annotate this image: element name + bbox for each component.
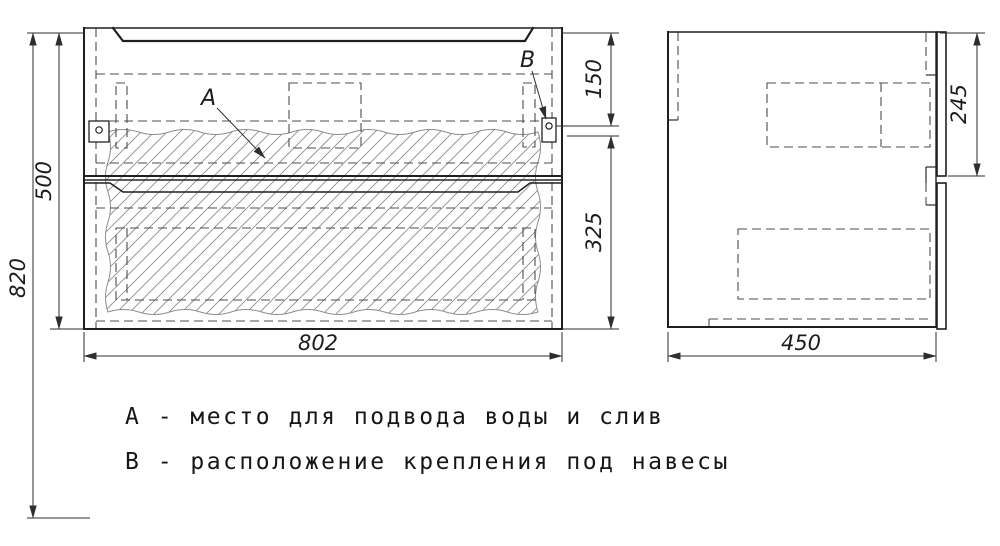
mounting-hole-left [96, 127, 102, 133]
hatch-section [106, 130, 541, 315]
side-view [668, 32, 946, 329]
dim-carcass-depth-value: 450 [781, 331, 821, 355]
technical-drawing: А В [0, 0, 1000, 546]
dim-carcass-width: 802 [84, 331, 562, 356]
dim-carcass-width-value: 802 [298, 331, 338, 355]
mounting-plate-right [542, 118, 556, 142]
legend-line-a: А - место для подвода воды и слив [125, 404, 664, 430]
side-body-outline [668, 32, 936, 327]
legend: А - место для подвода воды и слив В - ра… [125, 404, 730, 475]
dim-overall-height-value: 820 [6, 258, 30, 298]
mounting-hole-right [546, 123, 552, 129]
callout-b-leader [532, 71, 546, 119]
dim-carcass-height: 500 [32, 33, 59, 329]
dim-hanger-offset-top: 150 [582, 33, 611, 126]
dim-hanger-offset-top-value: 150 [582, 59, 606, 99]
callout-b-label: В [520, 48, 535, 73]
legend-line-b: В - расположение крепления под навесы [125, 449, 730, 475]
side-drawer-fronts [937, 32, 946, 329]
front-view: А В [84, 28, 562, 329]
dim-drawer-front-height: 245 [947, 33, 977, 176]
dim-hanger-offset-bottom-value: 325 [582, 212, 606, 252]
mounting-plate-left [89, 121, 109, 142]
drawing-canvas: А В [0, 0, 1000, 546]
dim-carcass-depth: 450 [668, 331, 936, 356]
dim-overall-height: 820 [6, 33, 33, 518]
dim-hanger-offset-bottom: 325 [582, 136, 611, 329]
side-hidden-lines [678, 32, 930, 326]
callout-a-label: А [199, 86, 216, 111]
dim-carcass-height-value: 500 [32, 161, 56, 201]
dim-drawer-front-height-value: 245 [947, 84, 971, 124]
